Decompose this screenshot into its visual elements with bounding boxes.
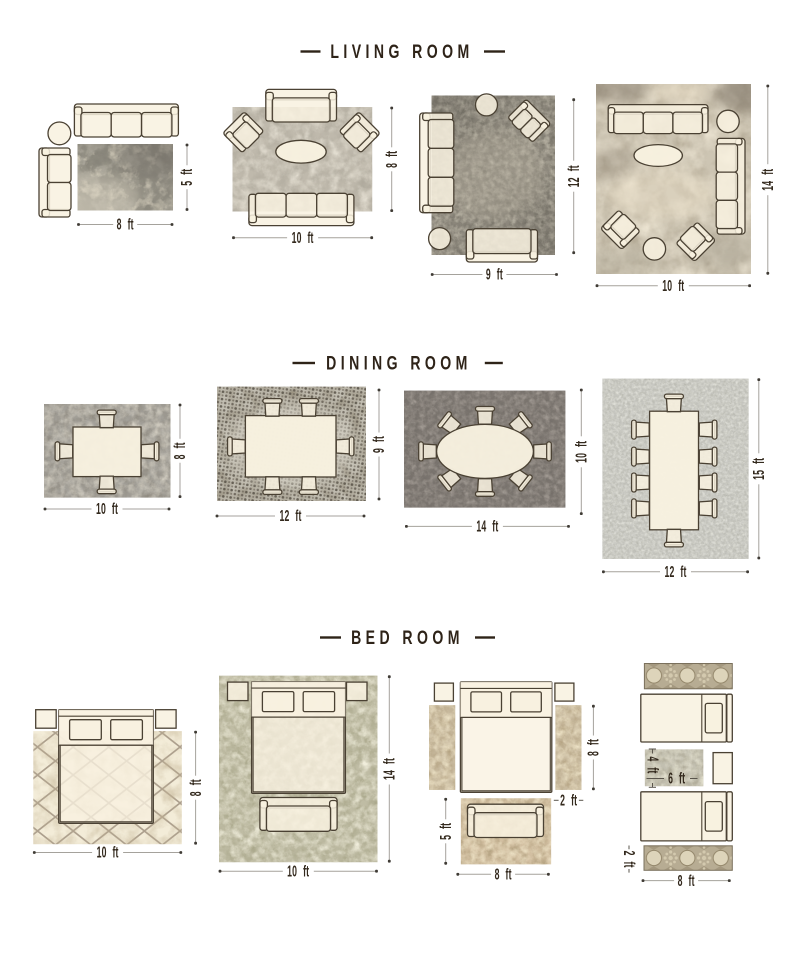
- svg-text:10 ft: 10 ft: [573, 440, 590, 462]
- svg-text:15 ft: 15 ft: [750, 457, 767, 479]
- svg-text:14 ft: 14 ft: [759, 168, 776, 190]
- svg-text:2 ft: 2 ft: [620, 851, 637, 868]
- svg-text:10 ft: 10 ft: [97, 844, 119, 861]
- svg-text:10 ft: 10 ft: [287, 863, 309, 880]
- svg-text:8 ft: 8 ft: [383, 150, 400, 167]
- svg-text:12 ft: 12 ft: [279, 508, 301, 525]
- svg-text:6 ft: 6 ft: [668, 770, 685, 787]
- svg-text:8 ft: 8 ft: [187, 779, 204, 796]
- svg-text:12 ft: 12 ft: [664, 563, 686, 580]
- svg-text:14 ft: 14 ft: [381, 758, 398, 780]
- svg-text:10 ft: 10 ft: [96, 501, 118, 518]
- svg-text:9 ft: 9 ft: [486, 266, 503, 283]
- svg-text:8 ft: 8 ft: [585, 739, 602, 756]
- svg-text:8 ft: 8 ft: [678, 872, 695, 889]
- svg-text:4 ft: 4 ft: [644, 756, 661, 773]
- svg-text:2 ft: 2 ft: [560, 792, 577, 809]
- svg-text:8 ft: 8 ft: [172, 442, 189, 459]
- svg-text:12 ft: 12 ft: [565, 165, 582, 187]
- svg-text:10 ft: 10 ft: [662, 277, 684, 294]
- svg-text:14 ft: 14 ft: [476, 518, 498, 535]
- svg-text:5 ft: 5 ft: [437, 822, 454, 839]
- svg-text:LIVING ROOM: LIVING ROOM: [330, 41, 473, 63]
- svg-text:10 ft: 10 ft: [292, 229, 314, 246]
- svg-text:9 ft: 9 ft: [371, 436, 388, 453]
- svg-text:8 ft: 8 ft: [117, 216, 134, 233]
- svg-text:5 ft: 5 ft: [179, 168, 196, 185]
- svg-text:BED ROOM: BED ROOM: [351, 627, 464, 649]
- svg-text:8 ft: 8 ft: [495, 866, 512, 883]
- svg-text:DINING ROOM: DINING ROOM: [326, 353, 472, 375]
